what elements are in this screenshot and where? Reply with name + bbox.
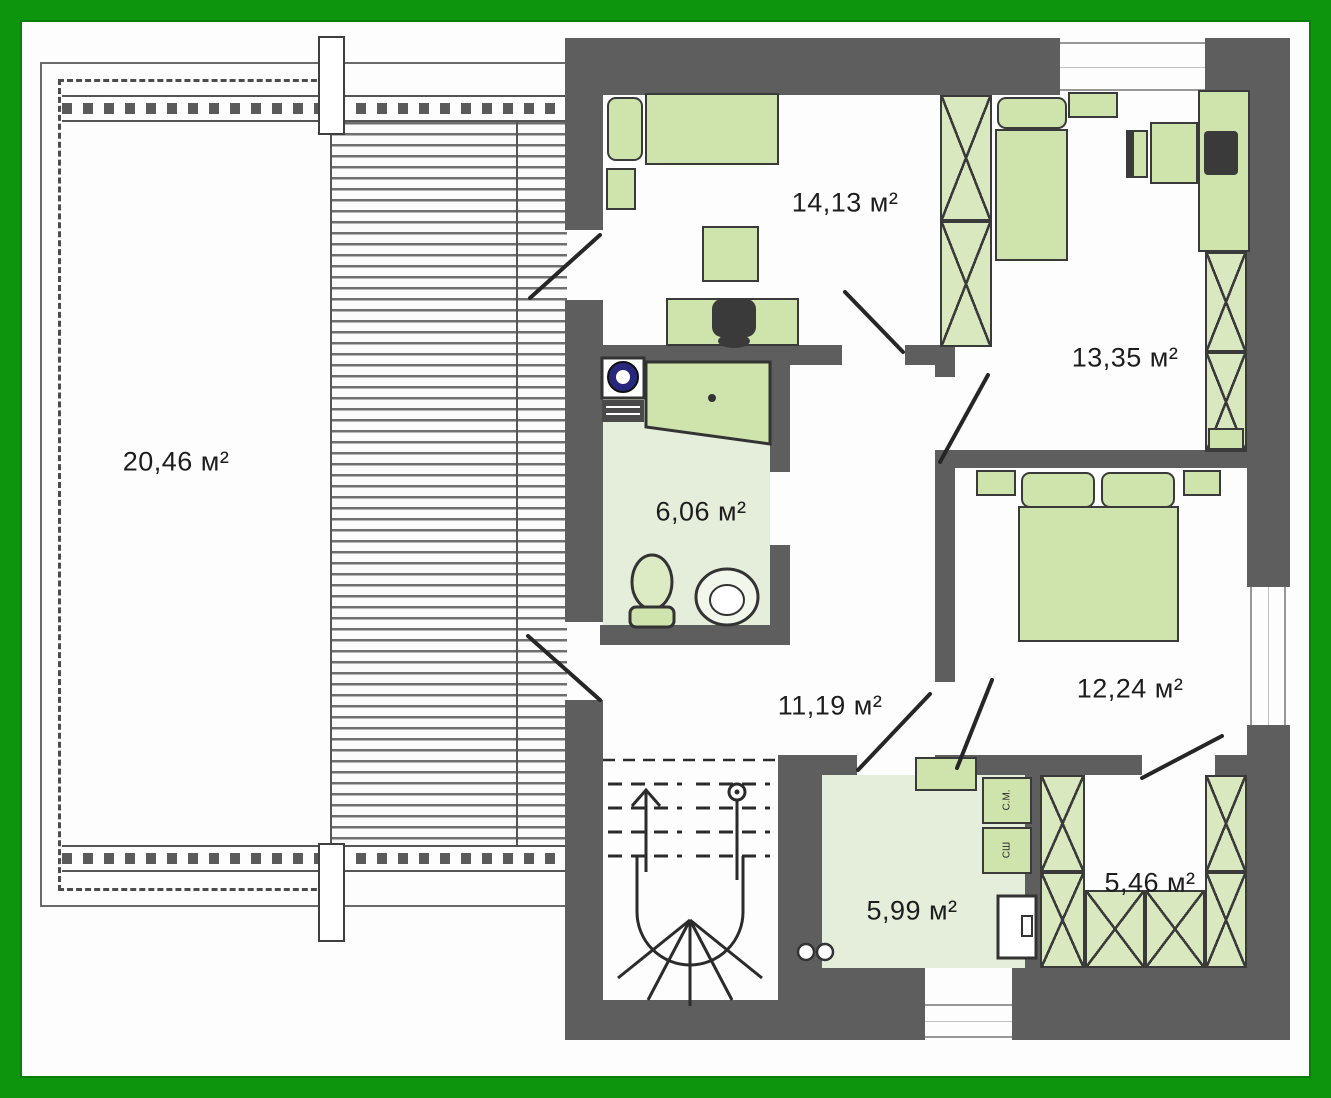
floor-plan: С.М. СШ <box>0 0 1331 1098</box>
nightstand <box>1183 470 1221 496</box>
wall <box>935 345 955 377</box>
wall <box>565 300 603 622</box>
bed-single <box>645 93 779 165</box>
wall <box>822 755 857 775</box>
door-swing <box>940 375 988 462</box>
wall <box>770 365 790 472</box>
chair <box>1208 428 1244 450</box>
door-swing <box>1142 736 1222 778</box>
dryer-label: СШ <box>1002 842 1013 858</box>
wardrobe-cell <box>1085 890 1145 968</box>
shelf <box>1068 92 1118 118</box>
wardrobe-cell <box>940 221 992 347</box>
terrace-deck-hatch <box>330 122 567 845</box>
wall <box>565 700 603 1040</box>
desk <box>1150 122 1198 184</box>
bed-double <box>1018 506 1179 642</box>
desk-wall-table <box>1198 90 1250 252</box>
wardrobe-cell <box>1205 872 1247 968</box>
pillow <box>607 97 643 161</box>
room-label-wardrobe: 5,46 м² <box>1104 868 1195 899</box>
wall <box>600 345 842 365</box>
washing-machine-label: С.М. <box>1002 789 1013 810</box>
roof-overhang-dashed-line <box>58 79 344 891</box>
room-label-laundry: 5,99 м² <box>866 896 957 927</box>
wall <box>1012 968 1290 1040</box>
wardrobe-cell <box>1205 252 1247 352</box>
room-label-terrace: 20,46 м² <box>123 447 230 478</box>
window-top <box>1060 42 1205 91</box>
bed-single <box>995 129 1068 261</box>
wall <box>1215 755 1247 775</box>
bathroom-floor <box>603 365 770 625</box>
terrace-railing-top <box>62 95 565 122</box>
nightstand <box>976 470 1016 496</box>
wall <box>935 468 955 682</box>
room-label-bathroom: 6,06 м² <box>655 497 746 528</box>
pillow <box>1021 472 1095 508</box>
wardrobe-cell <box>1040 872 1085 968</box>
handrail-post <box>729 784 745 800</box>
terrace-post-bottom <box>318 843 345 942</box>
wall <box>565 38 1060 95</box>
wall <box>822 968 925 1040</box>
wall <box>565 1000 822 1040</box>
wardrobe-cell <box>940 95 992 221</box>
wardrobe-cell <box>1145 890 1205 968</box>
room-label-hall: 11,19 м² <box>778 691 883 722</box>
window-right <box>1250 587 1286 725</box>
wall-stairwell <box>778 755 822 1000</box>
terrace-railing-bottom <box>62 845 565 872</box>
desk <box>666 298 799 346</box>
room-label-bedroom-right: 13,35 м² <box>1072 343 1179 374</box>
room-label-bedroom-master: 12,24 м² <box>1077 674 1184 705</box>
armchair <box>702 226 759 282</box>
terrace-post-top <box>318 36 345 135</box>
wall <box>1247 38 1290 587</box>
shelf <box>915 757 977 791</box>
room-label-bedroom-top: 14,13 м² <box>792 188 899 219</box>
nightstand <box>606 168 636 210</box>
pillow <box>997 97 1067 129</box>
door-swing <box>845 292 903 352</box>
window-bottom <box>925 1004 1012 1038</box>
wardrobe-cell <box>1040 775 1085 872</box>
staircase <box>603 760 778 1006</box>
wall <box>600 625 790 645</box>
wardrobe-cell <box>1205 775 1247 872</box>
wall <box>935 450 1247 468</box>
terrace-deck-seam <box>516 122 518 845</box>
chair <box>1126 130 1148 178</box>
pillow <box>1101 472 1175 508</box>
